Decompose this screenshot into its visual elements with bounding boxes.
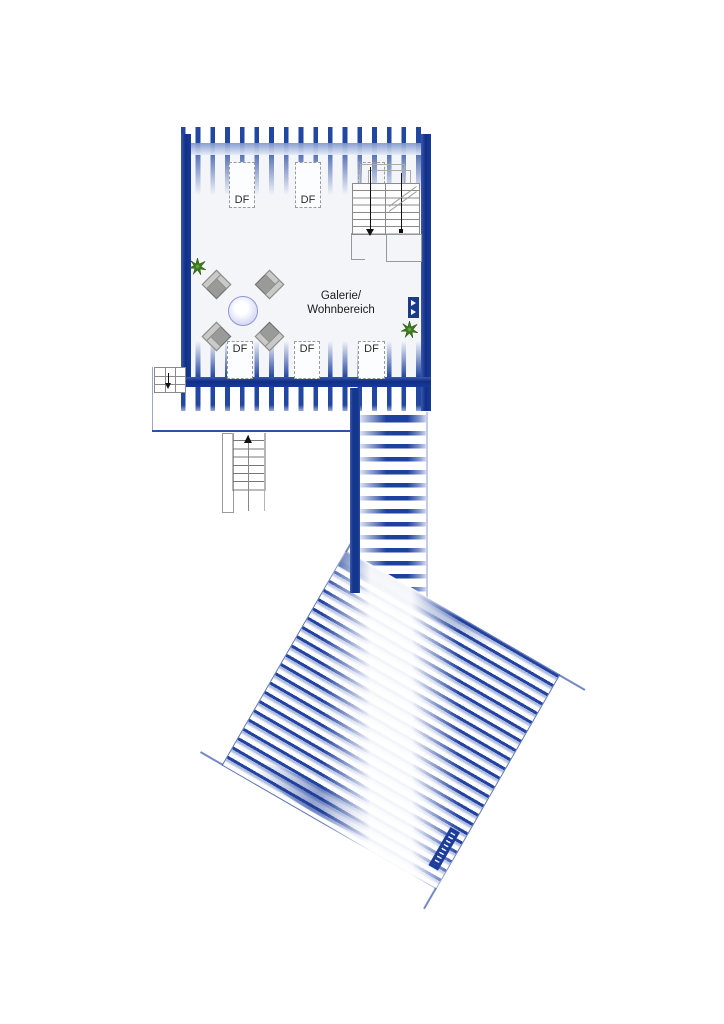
- plant-icon: [189, 258, 206, 275]
- roof-window-top-middle: DF: [295, 162, 321, 208]
- stair-direction-up-arrow-icon: [244, 435, 252, 443]
- fixture-mark-icon: [411, 309, 416, 315]
- roof-window-top-left: DF: [229, 162, 255, 208]
- wall-top: [181, 143, 431, 155]
- roof-window-bottom-middle: DF: [294, 341, 320, 379]
- room-label-line2: Wohnbereich: [296, 303, 386, 317]
- stair-direction-down-arrow-icon: [366, 229, 374, 236]
- edge-overshoot-line: [423, 888, 436, 910]
- stair-start-dot: [399, 229, 403, 233]
- stair-direction-down-arrow-icon: [165, 383, 171, 389]
- stair-lower-outline: [351, 233, 365, 260]
- wall-right: [421, 134, 431, 411]
- corridor-left-line: [152, 367, 153, 432]
- stair-rail: [264, 433, 265, 511]
- roof-plane: [222, 551, 561, 890]
- roof-plane-glare: [220, 549, 562, 891]
- stair-walkline: [248, 435, 249, 511]
- roof-window-label: DF: [295, 343, 319, 355]
- stair-landing: [386, 234, 422, 262]
- roof-walkway-edge-bar: [350, 388, 360, 593]
- roof-window-bottom-left: DF: [227, 341, 253, 379]
- roof-window-label: DF: [359, 343, 384, 355]
- plant-icon: [401, 321, 418, 338]
- stair-walkline-left: [370, 167, 371, 229]
- edge-overshoot-line: [559, 674, 586, 690]
- edge-overshoot-line: [200, 751, 223, 765]
- fixture-mark-icon: [411, 300, 416, 306]
- wall-fixture-icon: [408, 297, 419, 318]
- round-table: [228, 296, 258, 326]
- roof-window-label: DF: [230, 194, 254, 206]
- roof-window-label: DF: [296, 194, 320, 206]
- roof-window-bottom-right: DF: [358, 341, 385, 379]
- room-label: Galerie/ Wohnbereich: [296, 289, 386, 317]
- room-label-line1: Galerie/: [296, 289, 386, 303]
- floor-plan: DF DF DF DF DF DF: [0, 0, 724, 1024]
- mini-stair: [154, 367, 186, 393]
- roof-window-label: DF: [228, 343, 252, 355]
- staircase-lower-exit: [222, 433, 265, 513]
- corridor-bottom-line: [152, 430, 358, 432]
